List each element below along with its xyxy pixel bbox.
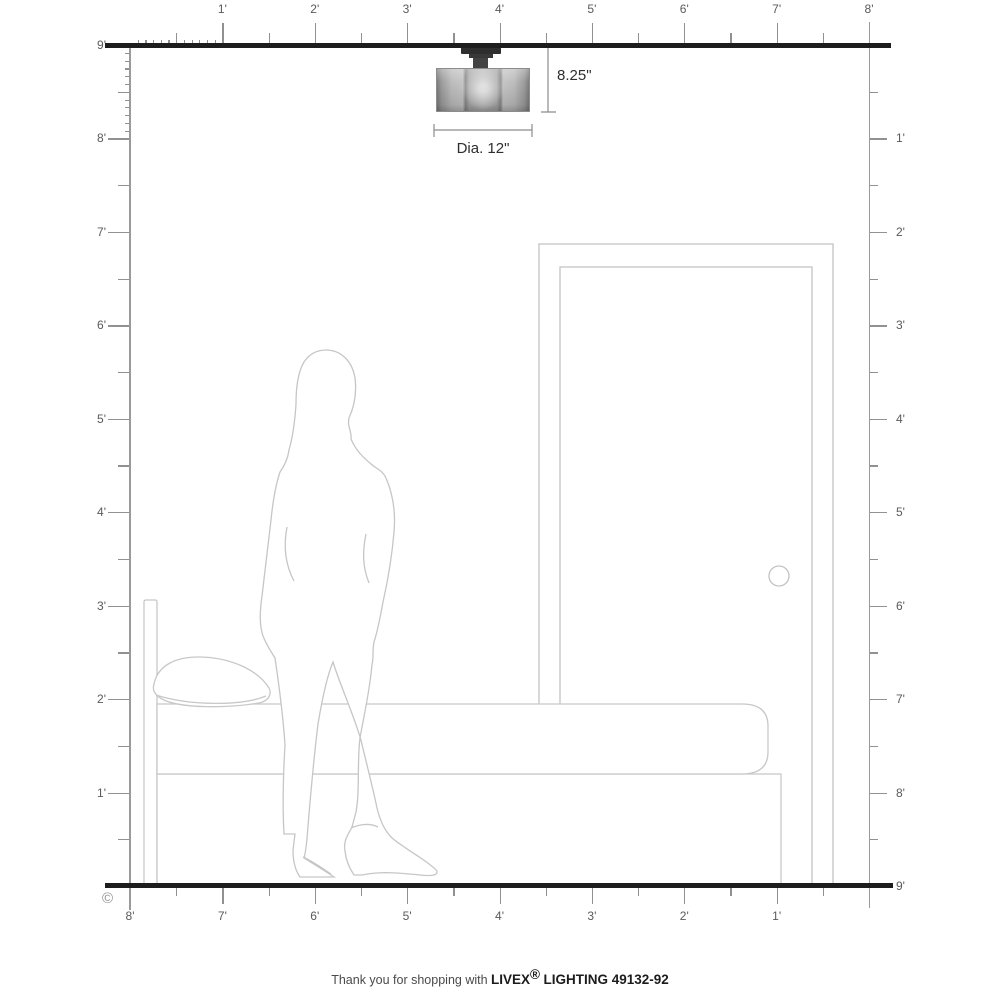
ruler-tick xyxy=(592,888,593,904)
ruler-label-left: 8' xyxy=(66,130,106,146)
ruler-tick xyxy=(869,839,878,840)
ruler-label-bottom: 5' xyxy=(403,908,412,924)
ceiling-line xyxy=(105,43,891,48)
ruler-tick xyxy=(869,185,878,186)
ruler-label-left: 2' xyxy=(66,691,106,707)
ruler-tick xyxy=(869,793,887,794)
ruler-label-right: 3' xyxy=(896,317,905,333)
ruler-tick xyxy=(869,746,878,747)
ruler-label-right: 5' xyxy=(896,504,905,520)
ruler-label-bottom: 6' xyxy=(310,908,319,924)
ruler-tick xyxy=(269,888,270,896)
ruler-label-top: 5' xyxy=(587,1,596,17)
ruler-tick xyxy=(869,652,878,653)
ruler-label-right: 1' xyxy=(896,130,905,146)
ruler-tick xyxy=(108,232,130,233)
ruler-label-left: 7' xyxy=(66,224,106,240)
ruler-label-bottom: 4' xyxy=(495,908,504,924)
footer-prefix: Thank you for shopping with xyxy=(331,973,487,987)
height-dimension-line xyxy=(541,47,556,112)
ruler-label-right: 7' xyxy=(896,691,905,707)
ruler-tick xyxy=(361,888,362,896)
ruler-tick xyxy=(407,888,408,904)
ruler-label-left: 3' xyxy=(66,598,106,614)
ruler-label-top: 3' xyxy=(403,1,412,17)
ruler-tick xyxy=(108,512,130,513)
ruler-tick xyxy=(108,419,130,420)
ruler-tick xyxy=(500,888,501,904)
ruler-label-top: 1' xyxy=(218,1,227,17)
ruler-label-bottom: 1' xyxy=(772,908,781,924)
ruler-tick xyxy=(592,23,593,45)
ruler-tick xyxy=(869,606,887,607)
ruler-label-top: 4' xyxy=(495,1,504,17)
ruler-label-bottom: 7' xyxy=(218,908,227,924)
diameter-dimension-line xyxy=(434,124,532,137)
ruler-label-left: 4' xyxy=(66,504,106,520)
ruler-tick xyxy=(869,699,887,700)
floor-line xyxy=(105,883,893,888)
ruler-label-top: 6' xyxy=(680,1,689,17)
footer-registered-mark: ® xyxy=(530,967,540,982)
ruler-tick xyxy=(869,325,887,326)
ruler-tick xyxy=(108,793,130,794)
ruler-tick xyxy=(823,888,824,896)
ruler-label-bottom: 3' xyxy=(587,908,596,924)
ruler-tick xyxy=(453,888,454,896)
fixture-diameter-dimension: Dia. 12" xyxy=(433,140,533,157)
ruler-tick xyxy=(869,279,878,280)
right-ruler-line xyxy=(869,22,871,908)
ruler-label-right: 8' xyxy=(896,785,905,801)
ruler-label-right: 6' xyxy=(896,598,905,614)
ruler-tick xyxy=(869,465,878,466)
ruler-tick xyxy=(108,606,130,607)
ruler-label-left: 5' xyxy=(66,411,106,427)
fixture-shade xyxy=(436,68,530,112)
ruler-tick xyxy=(176,888,177,896)
ruler-label-top: 2' xyxy=(310,1,319,17)
ruler-tick xyxy=(108,138,130,139)
dimension-diagram: 8.25" Dia. 12" 1'2'3'4'5'6'7'8'9'8'7'6'5… xyxy=(0,0,1000,1000)
ruler-tick xyxy=(315,23,316,45)
ruler-tick xyxy=(108,699,130,700)
ruler-label-bottom: 8' xyxy=(126,908,135,924)
ruler-tick xyxy=(684,23,685,45)
bed-base xyxy=(157,774,781,886)
ruler-tick xyxy=(684,888,685,904)
ruler-tick xyxy=(869,372,878,373)
bed-mattress xyxy=(157,704,768,774)
footer: Thank you for shopping with LIVEX® LIGHT… xyxy=(0,967,1000,987)
ruler-tick xyxy=(869,512,887,513)
ruler-label-right: 4' xyxy=(896,411,905,427)
copyright-symbol: © xyxy=(102,890,113,907)
ruler-label-bottom: 2' xyxy=(680,908,689,924)
left-ruler-line xyxy=(129,45,131,910)
ruler-tick xyxy=(777,888,778,904)
footer-product-number: LIGHTING 49132-92 xyxy=(543,972,668,987)
ruler-tick xyxy=(546,888,547,896)
ruler-tick xyxy=(869,92,878,93)
ruler-label-left: 1' xyxy=(66,785,106,801)
ruler-tick xyxy=(638,888,639,896)
ruler-tick xyxy=(869,559,878,560)
ruler-tick xyxy=(500,23,501,45)
ruler-tick xyxy=(869,419,887,420)
ruler-tick xyxy=(407,23,408,45)
bed xyxy=(144,600,781,886)
door-knob xyxy=(769,566,789,586)
ruler-label-top: 7' xyxy=(772,1,781,17)
ruler-tick xyxy=(869,232,887,233)
ruler-tick xyxy=(777,23,778,45)
ruler-label-right: 2' xyxy=(896,224,905,240)
ruler-tick xyxy=(222,23,223,45)
ruler-tick xyxy=(869,138,887,139)
ruler-label-top: 8' xyxy=(865,1,874,17)
fixture-height-dimension: 8.25" xyxy=(557,67,592,84)
bed-headboard xyxy=(144,600,157,886)
footer-brand: LIVEX xyxy=(491,972,530,987)
ruler-tick xyxy=(222,888,223,904)
ruler-label-right: 9' xyxy=(896,878,905,894)
ruler-label-left: 9' xyxy=(66,37,106,53)
ruler-tick xyxy=(108,325,130,326)
ruler-label-left: 6' xyxy=(66,317,106,333)
ruler-tick xyxy=(730,888,731,896)
ruler-tick xyxy=(315,888,316,904)
